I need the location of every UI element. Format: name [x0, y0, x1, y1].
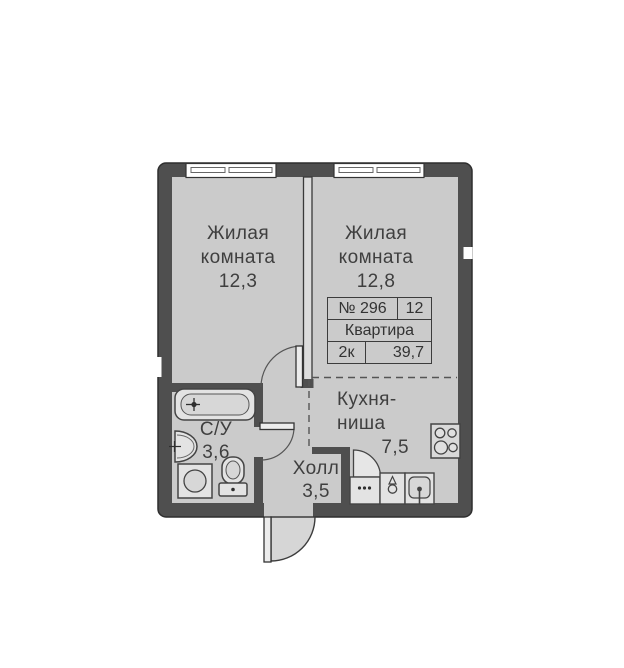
apartment-title: Квартира [328, 320, 431, 341]
floor-plan-graphics [0, 0, 624, 668]
room-area: 3,5 [287, 480, 345, 503]
room-label-hall: Холл 3,5 [287, 457, 345, 503]
room-name: Кухня- [337, 388, 425, 412]
bathroom-wall-right-lower [254, 457, 263, 503]
apartment-number: № 296 [328, 298, 398, 319]
room-label-bathroom: С/У 3,6 [190, 418, 242, 464]
room-name: Жилая [168, 222, 308, 246]
window-icon [334, 164, 424, 178]
room-name: ниша [337, 412, 425, 436]
room-label-living1: Жилая комната 12,3 [168, 222, 308, 294]
room-area: 12,8 [306, 270, 446, 294]
room-area: 7,5 [337, 436, 425, 460]
room-label-living2: Жилая комната 12,8 [306, 222, 446, 294]
kitchen-faucet-cabinet-icon [380, 473, 405, 504]
apartment-info-table: № 296 12 Квартира 2к 39,7 [327, 297, 432, 364]
room-label-kitchen: Кухня- ниша 7,5 [337, 388, 425, 460]
room-area: 12,3 [168, 270, 308, 294]
info-row-number: № 296 12 [328, 298, 431, 319]
entrance-opening [264, 503, 313, 517]
entrance-door-leaf [264, 517, 271, 562]
wall-joint [464, 247, 473, 259]
washing-machine-icon [178, 464, 212, 498]
room-name: Жилая [306, 222, 446, 246]
kitchen-sink-icon [405, 473, 434, 504]
apartment-rooms: 2к [328, 342, 366, 363]
room-name: Холл [287, 457, 345, 480]
info-row-area: 2к 39,7 [328, 341, 431, 363]
entrance-door-swing [271, 517, 315, 561]
bathtub-icon [175, 389, 255, 420]
room-name: С/У [190, 418, 242, 441]
room-name: комната [306, 246, 446, 270]
info-row-title: Квартира [328, 319, 431, 341]
kitchen-cabinet-icon [350, 477, 380, 504]
apartment-section: 12 [398, 298, 431, 319]
wall-joint [157, 357, 162, 377]
floor-plan: Жилая комната 12,3 Жилая комната 12,8 Ку… [0, 0, 624, 668]
window-icon [186, 164, 276, 178]
room-door-leaf [296, 346, 303, 387]
stove-icon [431, 424, 460, 458]
bathroom-door-leaf [260, 423, 294, 430]
room-area: 3,6 [190, 441, 242, 464]
room-name: комната [168, 246, 308, 270]
apartment-area: 39,7 [366, 342, 431, 363]
